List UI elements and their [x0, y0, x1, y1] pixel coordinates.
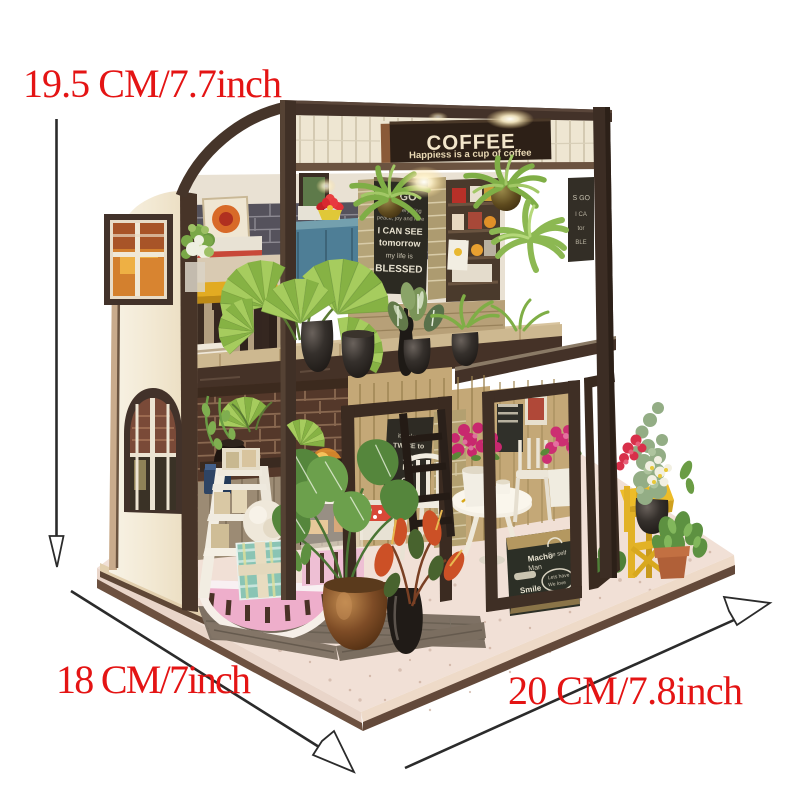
svg-text:my life is: my life is: [386, 253, 414, 261]
svg-text:19.5 CM/7.7inch: 19.5 CM/7.7inch: [23, 61, 282, 106]
svg-text:BLE: BLE: [575, 240, 586, 246]
svg-text:20 CM/7.8inch: 20 CM/7.8inch: [508, 668, 743, 713]
svg-text:BLESSED: BLESSED: [375, 263, 423, 276]
svg-text:18 CM/7inch: 18 CM/7inch: [56, 657, 251, 702]
svg-text:tor: tor: [577, 226, 584, 232]
svg-text:I CAN SEE: I CAN SEE: [377, 225, 422, 237]
svg-text:S GO: S GO: [572, 195, 590, 202]
svg-text:I CA: I CA: [575, 212, 587, 218]
svg-text:tomorrow: tomorrow: [379, 237, 422, 248]
